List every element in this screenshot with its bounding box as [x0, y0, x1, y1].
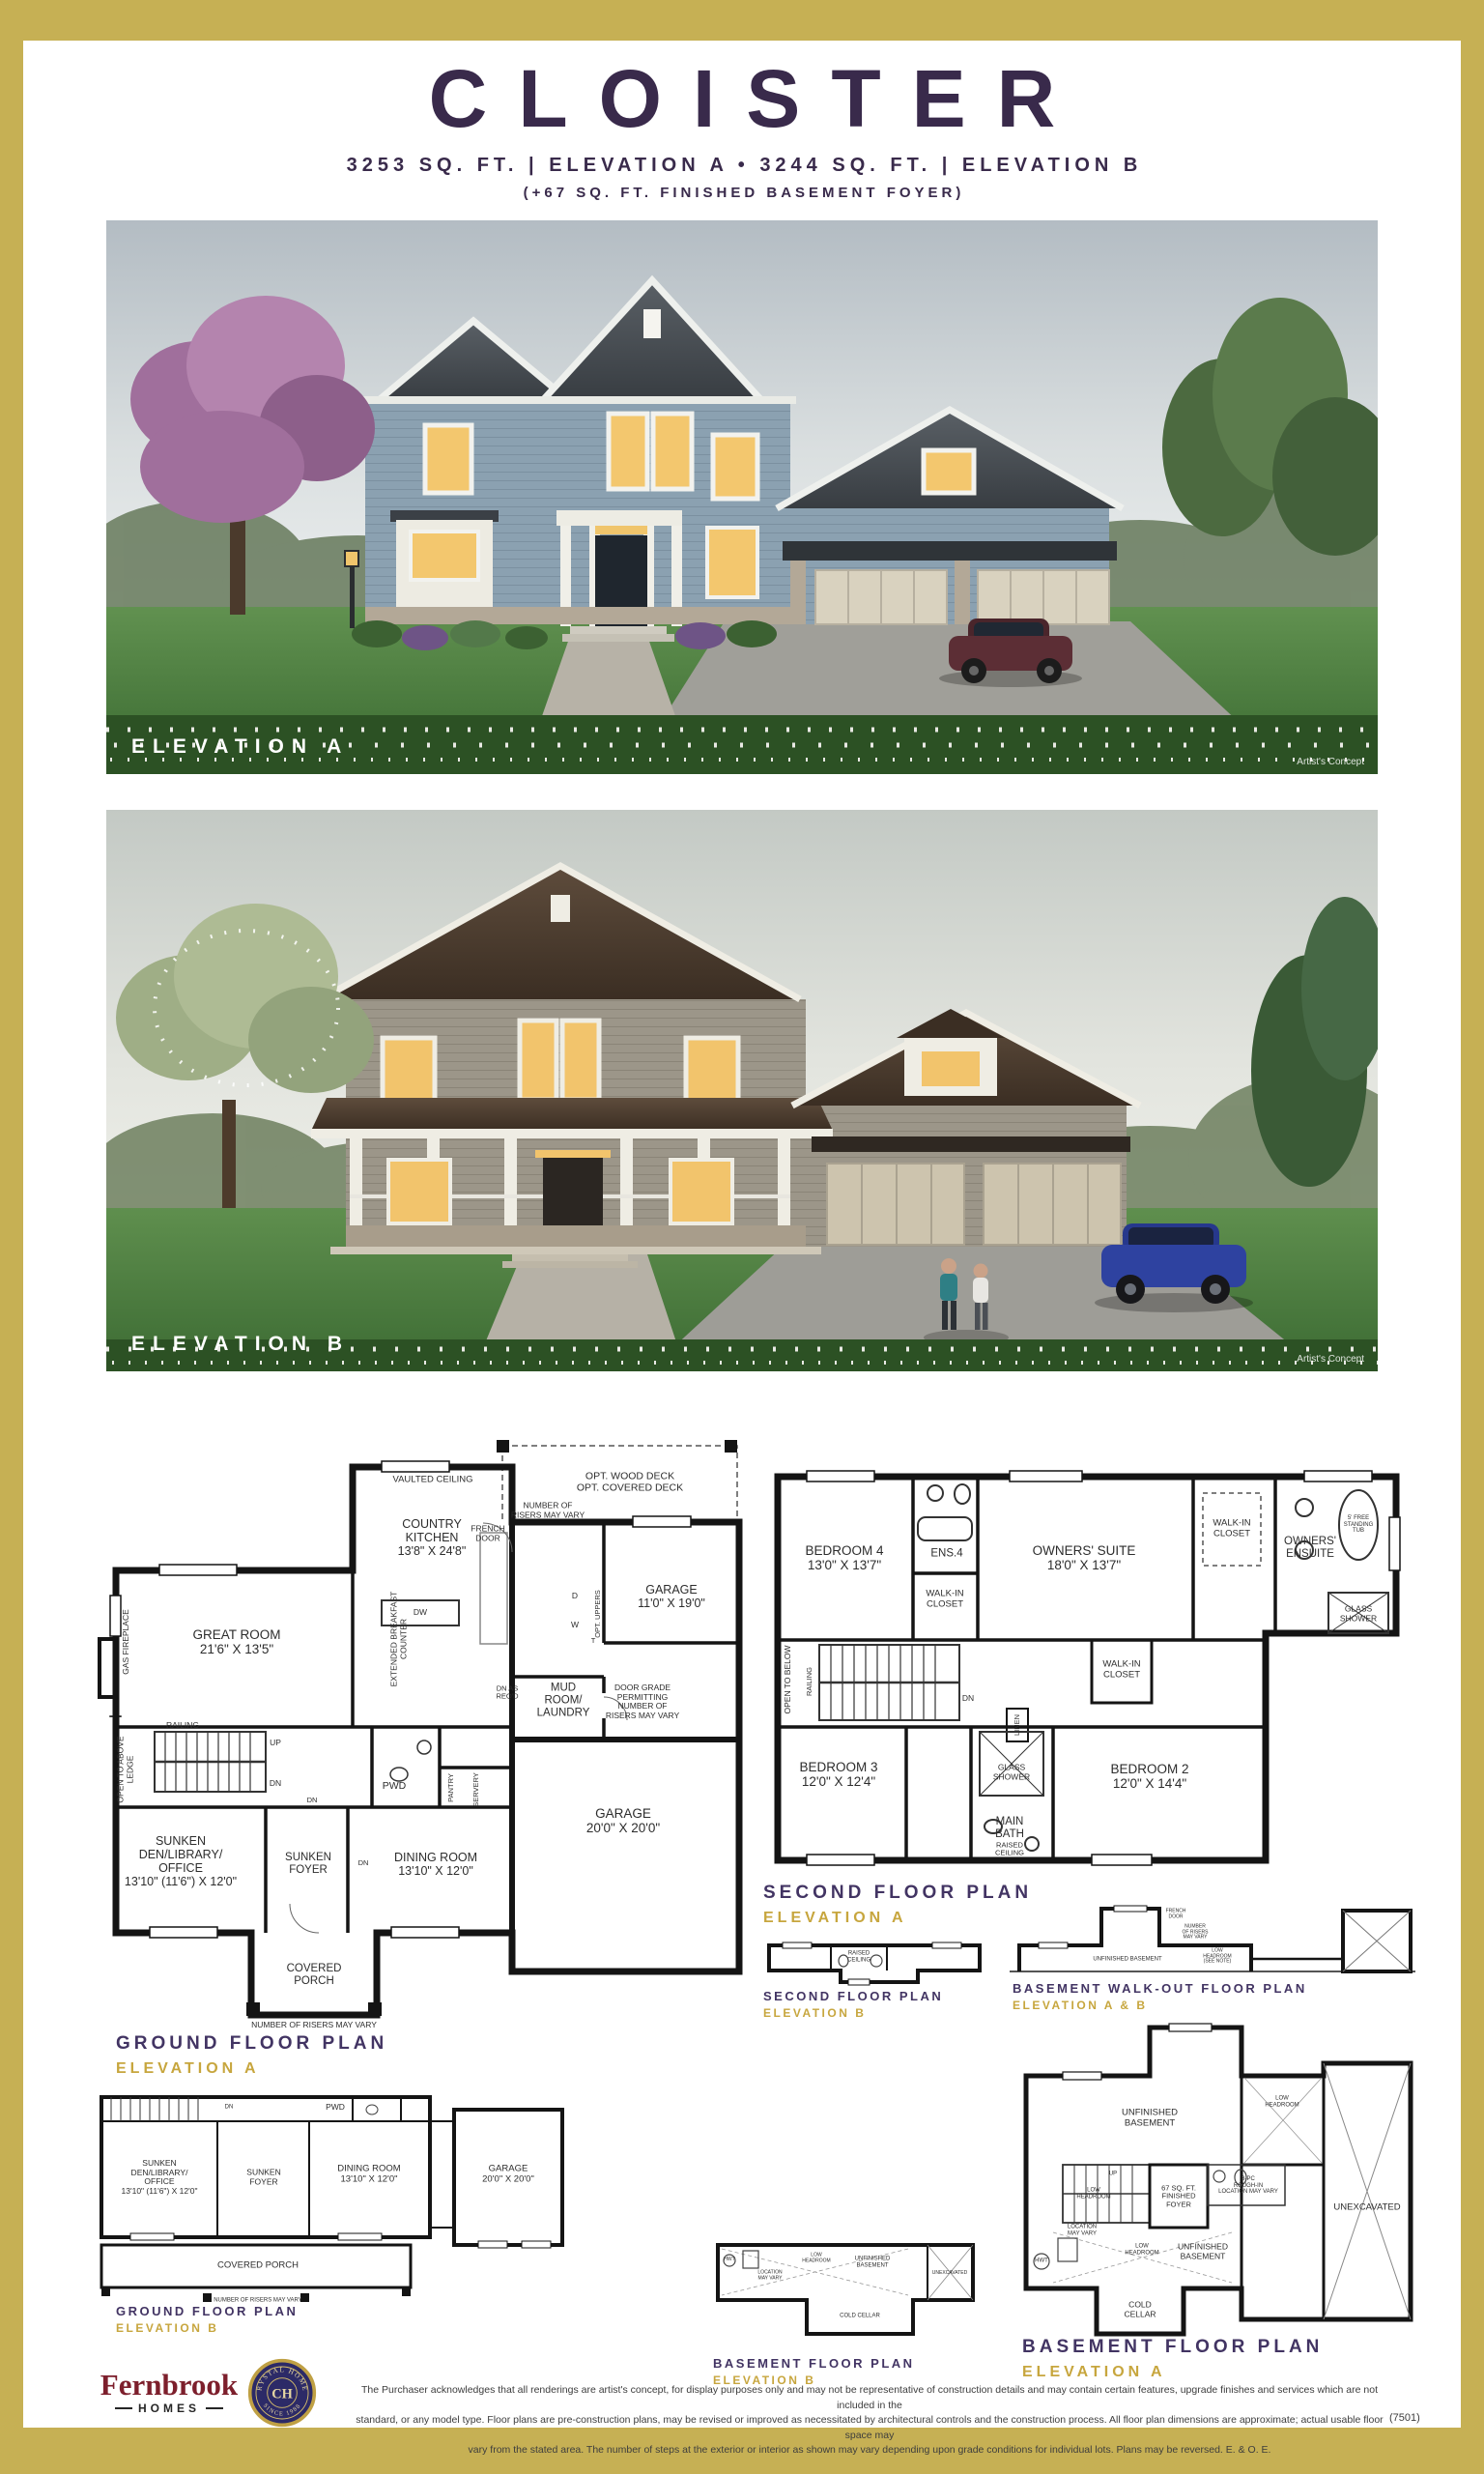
note-raised-ceiling: RAISED CEILING — [847, 1950, 870, 1963]
basement-a-walls — [1005, 2020, 1420, 2344]
note-unfinished: UNFINISHED BASEMENT — [855, 2256, 891, 2268]
note-washer: W — [571, 1621, 579, 1630]
note-breakfast-counter: EXTENDED BREAKFAST COUNTER — [389, 1592, 408, 1687]
note-dn-hall: DN — [307, 1797, 318, 1804]
disclaimer-line-1: The Purchaser acknowledges that all rend… — [348, 2383, 1391, 2413]
room-label-foyer: SUNKEN FOYER — [285, 1852, 331, 1877]
note-opt-uppers: OPT. UPPERS — [594, 1590, 602, 1638]
note-hwt: HWT — [724, 2258, 734, 2263]
note-railing: RAILING — [806, 1667, 813, 1696]
rendering-elevation-a: ELEVATION A Artist's Concept — [106, 220, 1378, 774]
elevation-a-label: ELEVATION A — [131, 735, 349, 759]
basement-floor-plan-b: HWT LOCATION MAY VARY LOW HEADROOM UNFIN… — [710, 2237, 981, 2344]
powder-fixtures — [390, 1740, 431, 1781]
walkout-title: BASEMENT WALK-OUT FLOOR PLAN — [1013, 1981, 1307, 1996]
note-open-above: OPEN TO ABOVE LEDGE — [116, 1736, 134, 1802]
room-label-garage-main: GARAGE 20'0" X 20'0" — [586, 1806, 660, 1835]
artists-concept-credit: Artist's Concept — [1297, 757, 1364, 767]
basement-b-title: BASEMENT FLOOR PLAN — [713, 2356, 915, 2371]
note-dn: DN — [270, 1779, 281, 1789]
room-label-owners-ensuite: OWNERS' ENSUITE — [1284, 1536, 1336, 1561]
room-label-garage-small: GARAGE 11'0" X 19'0" — [638, 1583, 705, 1610]
note-glass-shower-main: GLASS SHOWER — [993, 1763, 1030, 1781]
room-label-owners-suite: OWNERS' SUITE 18'0" X 13'7" — [1033, 1543, 1136, 1572]
basement-subtitle: (+67 SQ. FT. FINISHED BASEMENT FOYER) — [0, 185, 1484, 201]
note-railing: RAILING — [166, 1721, 199, 1731]
second-b-title: SECOND FLOOR PLAN — [763, 1989, 943, 2003]
seal-monogram: CH — [271, 2386, 293, 2402]
note-dn: DN — [225, 2105, 234, 2112]
note-dw: DW — [414, 1608, 427, 1618]
house-illustration-a — [106, 220, 1378, 774]
basement-a-elevation: ELEVATION A — [1022, 2364, 1166, 2381]
note-pantry: PANTRY — [447, 1773, 455, 1802]
logo-divider — [206, 2407, 223, 2409]
note-cold-cellar: COLD CELLAR — [840, 2314, 880, 2320]
disclaimer-line-2: standard, or any model type. Floor plans… — [348, 2413, 1391, 2443]
note-risers-bottom: NUMBER OF RISERS MAY VARY — [251, 2021, 377, 2030]
artists-concept-credit: Artist's Concept — [1297, 1354, 1364, 1365]
note-finished-foyer: 67 SQ. FT. FINISHED FOYER — [1161, 2184, 1196, 2208]
note-unfinished-basement: UNFINISHED BASEMENT — [1093, 1957, 1161, 1964]
disclaimer-line-3: vary from the stated area. The number of… — [348, 2443, 1391, 2459]
note-unexcavated: UNEXCAVATED — [932, 2271, 967, 2277]
note-low-headroom: LOW HEADROOM — [802, 2253, 830, 2263]
note-tub: T — [591, 1637, 596, 1645]
note-dn-foyer: DN — [358, 1859, 369, 1867]
note-french-door: FRENCH DOOR — [471, 1524, 504, 1542]
room-label-porch: COVERED PORCH — [217, 2261, 299, 2272]
elevation-b-label: ELEVATION B — [131, 1333, 350, 1356]
second-a-title: SECOND FLOOR PLAN — [763, 1883, 1032, 1904]
note-low-headroom-tr: LOW HEADROOM — [1265, 2095, 1298, 2108]
stairs — [155, 1732, 266, 1792]
stairs — [111, 2097, 198, 2121]
basement-walkout-plan: UNFINISHED BASEMENT FRENCH DOOR NUMBER O… — [1010, 1899, 1415, 1976]
note-up: UP — [270, 1739, 281, 1748]
room-label-pwd: PWD — [383, 1781, 407, 1793]
basement-b-walls — [710, 2237, 981, 2344]
note-cold-cellar: COLD CELLAR — [1124, 2300, 1156, 2318]
second-b-walls — [763, 1936, 985, 1989]
second-b-elevation: ELEVATION B — [763, 2006, 866, 2020]
note-door-grade: DOOR GRADE PERMITTING NUMBER OF RISERS M… — [606, 1683, 679, 1720]
brochure-page: CLOISTER 3253 SQ. FT. | ELEVATION A • 32… — [0, 0, 1484, 2474]
stone-base — [346, 1225, 806, 1247]
room-label-ens4: ENS.4 — [930, 1548, 962, 1561]
ground-b-walls — [92, 2083, 565, 2310]
ground-a-elevation: ELEVATION A — [116, 2060, 260, 2078]
note-linen: LINEN — [1013, 1714, 1021, 1736]
note-rough-in: 3-PC ROUGH-IN LOCATION MAY VARY — [1218, 2176, 1278, 2196]
note-up: UP — [1109, 2172, 1117, 2178]
room-label-dining: DINING ROOM 13'10" X 12'0" — [394, 1851, 477, 1878]
note-hwt: HWT — [1035, 2258, 1048, 2265]
note-low-headroom-stairs: LOW HEADROOM — [1076, 2187, 1110, 2200]
note-unfinished-right: UNFINISHED BASEMENT — [1178, 2242, 1228, 2260]
room-label-wic-bed4: WALK-IN CLOSET — [926, 1589, 963, 1609]
note-unfinished-top: UNFINISHED BASEMENT — [1122, 2108, 1178, 2128]
note-glass-shower-ensuite: GLASS SHOWER — [1340, 1604, 1377, 1623]
fernbrook-wordmark: Fernbrook — [92, 2370, 246, 2400]
rendering-elevation-b: ELEVATION B Artist's Concept — [106, 810, 1378, 1371]
stairs — [819, 1645, 959, 1720]
note-unexcavated: UNEXCAVATED — [1333, 2203, 1400, 2214]
note-free-standing-tub: 5' FREE STANDING TUB — [1344, 1515, 1374, 1535]
note-servery: SERVERY — [472, 1772, 480, 1807]
sqft-subtitle: 3253 SQ. FT. | ELEVATION A • 3244 SQ. FT… — [0, 155, 1484, 177]
room-label-wic-owners: WALK-IN CLOSET — [1213, 1518, 1250, 1539]
room-label-great-room: GREAT ROOM 21'6" X 13'5" — [192, 1627, 280, 1656]
basement-a-title: BASEMENT FLOOR PLAN — [1022, 2337, 1323, 2358]
metal-awning — [783, 541, 1117, 561]
second-floor-plan-b: RAISED CEILING — [763, 1936, 985, 1989]
note-low-headroom: LOW HEADROOM (SEE NOTE) — [1203, 1949, 1231, 1966]
note-dryer: D — [572, 1592, 578, 1601]
room-label-opt-deck: OPT. WOOD DECK OPT. COVERED DECK — [577, 1471, 683, 1494]
room-label-pwd: PWD — [326, 2103, 345, 2113]
note-risers: NUMBER OF RISERS MAY VARY — [1183, 1925, 1209, 1942]
room-label-mud-room: MUD ROOM/ LAUNDRY — [537, 1683, 590, 1720]
house-illustration-b — [106, 810, 1378, 1371]
ground-floor-plan-b: PWD DN SUNKEN DEN/LIBRARY/ OFFICE 13'10"… — [92, 2083, 565, 2310]
note-low-headroom-c: LOW HEADROOM — [1125, 2243, 1158, 2256]
room-label-country-kitchen: COUNTRY KITCHEN 13'8" X 24'8" — [398, 1517, 467, 1558]
room-label-den: SUNKEN DEN/LIBRARY/ OFFICE 13'10" (11'6"… — [122, 2159, 198, 2196]
ground-a-title: GROUND FLOOR PLAN — [116, 2033, 387, 2055]
fernbrook-logo: Fernbrook HOMES — [92, 2370, 246, 2415]
crystal-homes-seal: CRYSTAL HOMES SINCE 1988 CH — [247, 2358, 317, 2428]
porch-roof — [311, 1098, 833, 1131]
basement-floor-plan-a: UNFINISHED BASEMENT LOW HEADROOM UNEXCAV… — [1005, 2020, 1420, 2344]
room-label-wic-bed2: WALK-IN CLOSET — [1102, 1659, 1140, 1680]
room-label-main-bath: MAIN BATH — [995, 1816, 1024, 1841]
room-label-dining: DINING ROOM 13'10" X 12'0" — [337, 2164, 400, 2184]
note-open-to-below: OPEN TO BELOW — [784, 1645, 793, 1713]
second-a-elevation: ELEVATION A — [763, 1910, 907, 1927]
room-label-porch: COVERED PORCH — [287, 1963, 342, 1988]
walkout-elevation: ELEVATION A & B — [1013, 1999, 1148, 2012]
note-raised-ceiling: RAISED CEILING — [995, 1842, 1024, 1858]
portico — [556, 510, 682, 526]
stone-base — [365, 607, 790, 624]
note-gas-fireplace: GAS FIREPLACE — [122, 1609, 131, 1675]
window-marks — [1063, 2024, 1212, 2080]
second-a-walls — [763, 1450, 1415, 1880]
logo-divider — [115, 2407, 132, 2409]
room-label-bedroom3: BEDROOM 3 12'0" X 12'4" — [799, 1760, 877, 1789]
room-label-den: SUNKEN DEN/LIBRARY/ OFFICE 13'10" (11'6"… — [125, 1834, 237, 1888]
fernbrook-homes-text: HOMES — [138, 2402, 200, 2415]
note-dn-as-reqd: DN AS REQ'D — [496, 1685, 518, 1702]
note-location: LOCATION MAY VARY — [1068, 2224, 1097, 2236]
ground-b-elevation: ELEVATION B — [116, 2321, 218, 2335]
room-label-bedroom4: BEDROOM 4 13'0" X 13'7" — [805, 1543, 883, 1572]
plan-code: (7501) — [1389, 2412, 1420, 2424]
note-location: LOCATION MAY VARY — [757, 2270, 782, 2281]
note-vaulted-ceiling: VAULTED CEILING — [392, 1476, 472, 1486]
second-floor-plan-a: BEDROOM 4 13'0" X 13'7" ENS.4 WALK-IN CL… — [763, 1450, 1415, 1880]
room-label-bedroom2: BEDROOM 2 12'0" X 14'4" — [1110, 1762, 1188, 1791]
note-dn: DN — [962, 1694, 974, 1704]
ground-floor-plan-a: OPT. WOOD DECK OPT. COVERED DECK VAULTED… — [92, 1407, 744, 2035]
room-label-foyer: SUNKEN FOYER — [246, 2168, 280, 2186]
disclaimer: The Purchaser acknowledges that all rend… — [348, 2383, 1391, 2459]
note-french-door: FRENCH DOOR — [1166, 1909, 1186, 1919]
page-title: CLOISTER — [0, 58, 1484, 139]
ground-b-title: GROUND FLOOR PLAN — [116, 2304, 298, 2318]
window-marks — [1039, 1906, 1147, 1948]
note-risers-top: NUMBER OF RISERS MAY VARY — [511, 1501, 585, 1519]
room-label-garage: GARAGE 20'0" X 20'0" — [482, 2164, 534, 2184]
